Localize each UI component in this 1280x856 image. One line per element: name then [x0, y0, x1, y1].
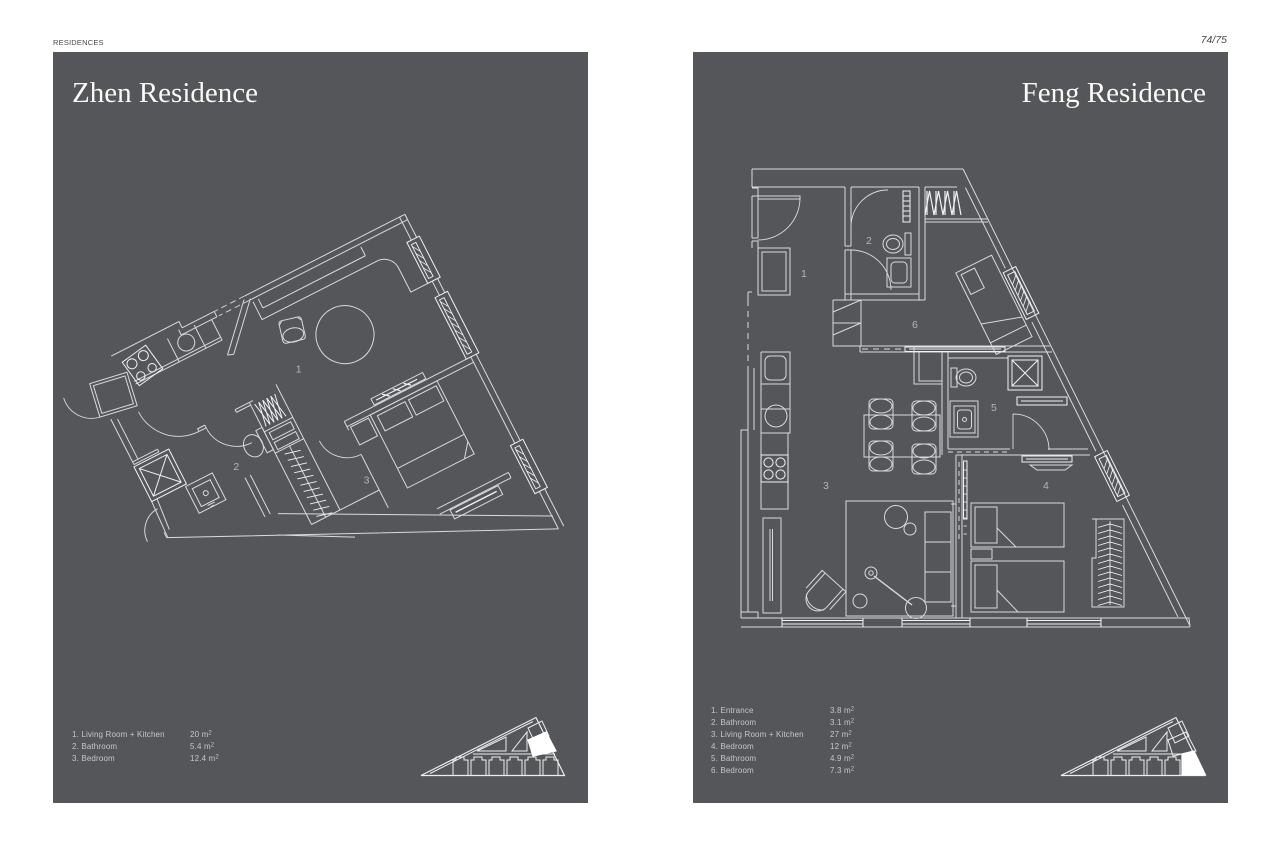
svg-text:4: 4	[1043, 480, 1049, 492]
svg-text:3: 3	[364, 474, 370, 486]
svg-text:5: 5	[991, 402, 997, 414]
svg-text:2: 2	[866, 235, 872, 247]
svg-text:6: 6	[912, 319, 918, 331]
svg-text:1: 1	[801, 268, 807, 280]
svg-text:1: 1	[296, 364, 302, 376]
svg-text:2: 2	[233, 461, 239, 473]
svg-text:3: 3	[823, 480, 829, 492]
